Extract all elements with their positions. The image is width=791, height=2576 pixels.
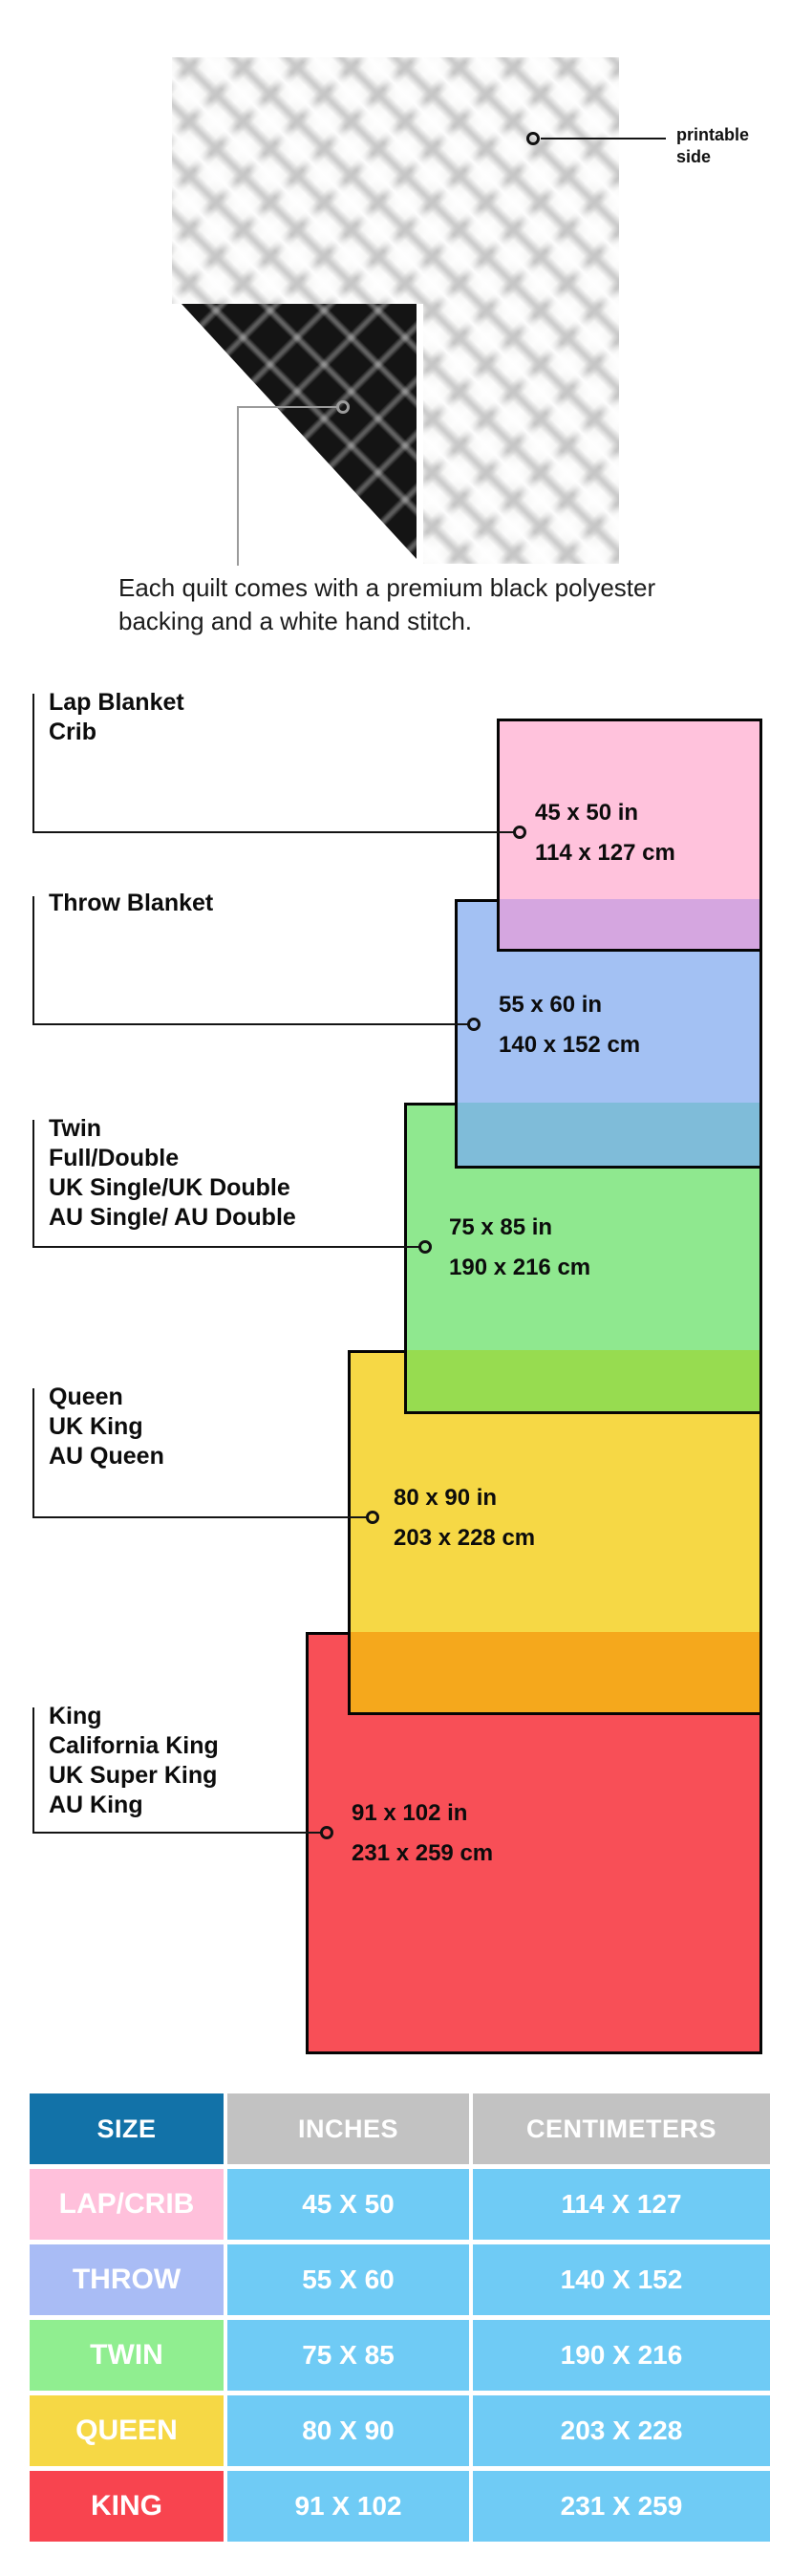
lap-marker-icon bbox=[513, 826, 526, 839]
leader-lap-h bbox=[32, 831, 514, 833]
throw-cm: 140 x 152 cm bbox=[499, 1025, 640, 1065]
table-row-king-size: KING bbox=[30, 2471, 224, 2542]
quilt-photo bbox=[172, 57, 619, 564]
size-annotation-lap: 45 x 50 in 114 x 127 cm bbox=[535, 793, 675, 873]
label-throw: Throw Blanket bbox=[49, 889, 213, 918]
lap-cm: 114 x 127 cm bbox=[535, 833, 675, 873]
throw-inches: 55 x 60 in bbox=[499, 985, 640, 1025]
printable-side-label-line1: printable bbox=[676, 124, 749, 146]
table-row-queen-size: QUEEN bbox=[30, 2395, 224, 2466]
table-row-lap-crib-cm: 114 X 127 bbox=[473, 2169, 770, 2240]
label-twin-line4: AU Single/ AU Double bbox=[49, 1203, 296, 1233]
lap-inches: 45 x 50 in bbox=[535, 793, 675, 833]
twin-cm: 190 x 216 cm bbox=[449, 1248, 590, 1288]
table-row-twin-cm: 190 X 216 bbox=[473, 2320, 770, 2391]
label-queen-line2: UK King bbox=[49, 1412, 164, 1442]
label-queen-line1: Queen bbox=[49, 1383, 164, 1412]
table-row-king-cm: 231 X 259 bbox=[473, 2471, 770, 2542]
table-row-throw-inches: 55 X 60 bbox=[227, 2244, 469, 2315]
king-marker-icon bbox=[320, 1826, 333, 1839]
table-row-twin-inches: 75 X 85 bbox=[227, 2320, 469, 2391]
label-lap-crib: Lap Blanket Crib bbox=[49, 688, 184, 747]
king-cm: 231 x 259 cm bbox=[352, 1834, 493, 1874]
leader-king-v bbox=[32, 1707, 34, 1833]
throw-marker-icon bbox=[467, 1018, 481, 1031]
label-lap-line1: Lap Blanket bbox=[49, 688, 184, 718]
leader-king-h bbox=[32, 1832, 321, 1834]
twin-inches: 75 x 85 in bbox=[449, 1208, 590, 1248]
label-king: King California King UK Super King AU Ki… bbox=[49, 1702, 219, 1820]
label-king-line1: King bbox=[49, 1702, 219, 1731]
leader-lap-v bbox=[32, 694, 34, 832]
quilt-caption-line1: Each quilt comes with a premium black po… bbox=[118, 571, 711, 605]
label-twin-line3: UK Single/UK Double bbox=[49, 1173, 296, 1203]
table-row-throw-size: THROW bbox=[30, 2244, 224, 2315]
black-backing-leader-line-h bbox=[238, 406, 337, 408]
printable-side-marker-icon bbox=[526, 132, 540, 145]
table-header-size: SIZE bbox=[30, 2093, 224, 2164]
black-backing-leader-line-v bbox=[237, 406, 239, 566]
table-row-queen-cm: 203 X 228 bbox=[473, 2395, 770, 2466]
table-row-lap-crib-size: LAP/CRIB bbox=[30, 2169, 224, 2240]
table-row-queen-inches: 80 X 90 bbox=[227, 2395, 469, 2466]
printable-side-label: printable side bbox=[676, 124, 749, 168]
size-annotation-king: 91 x 102 in 231 x 259 cm bbox=[352, 1793, 493, 1874]
table-row-twin-size: TWIN bbox=[30, 2320, 224, 2391]
size-annotation-throw: 55 x 60 in 140 x 152 cm bbox=[499, 985, 640, 1065]
black-backing-marker-icon bbox=[336, 400, 350, 414]
label-king-line4: AU King bbox=[49, 1791, 219, 1820]
label-lap-line2: Crib bbox=[49, 718, 184, 747]
queen-cm: 203 x 228 cm bbox=[394, 1518, 535, 1558]
queen-inches: 80 x 90 in bbox=[394, 1478, 535, 1518]
label-queen: Queen UK King AU Queen bbox=[49, 1383, 164, 1471]
printable-side-label-line2: side bbox=[676, 146, 749, 168]
leader-twin-v bbox=[32, 1120, 34, 1247]
quilt-size-chart-infographic: printable side Each quilt comes with a p… bbox=[0, 0, 791, 2576]
quilt-caption-line2: backing and a white hand stitch. bbox=[118, 605, 711, 638]
label-king-line2: California King bbox=[49, 1731, 219, 1761]
size-annotation-queen: 80 x 90 in 203 x 228 cm bbox=[394, 1478, 535, 1558]
twin-marker-icon bbox=[418, 1240, 432, 1254]
label-twin-line2: Full/Double bbox=[49, 1144, 296, 1173]
label-throw-line1: Throw Blanket bbox=[49, 889, 213, 918]
leader-twin-h bbox=[32, 1246, 419, 1248]
leader-queen-h bbox=[32, 1516, 367, 1518]
queen-marker-icon bbox=[366, 1511, 379, 1524]
label-king-line3: UK Super King bbox=[49, 1761, 219, 1791]
size-table: SIZE INCHES CENTIMETERS LAP/CRIB 45 X 50… bbox=[30, 2093, 770, 2542]
label-twin: Twin Full/Double UK Single/UK Double AU … bbox=[49, 1114, 296, 1233]
label-twin-line1: Twin bbox=[49, 1114, 296, 1144]
table-header-centimeters: CENTIMETERS bbox=[473, 2093, 770, 2164]
label-queen-line3: AU Queen bbox=[49, 1442, 164, 1471]
quilt-caption: Each quilt comes with a premium black po… bbox=[118, 571, 711, 638]
king-inches: 91 x 102 in bbox=[352, 1793, 493, 1834]
table-header-inches: INCHES bbox=[227, 2093, 469, 2164]
leader-queen-v bbox=[32, 1388, 34, 1517]
table-row-throw-cm: 140 X 152 bbox=[473, 2244, 770, 2315]
leader-throw-v bbox=[32, 896, 34, 1024]
printable-side-leader-line bbox=[541, 138, 666, 140]
table-row-king-inches: 91 X 102 bbox=[227, 2471, 469, 2542]
table-row-lap-crib-inches: 45 X 50 bbox=[227, 2169, 469, 2240]
size-annotation-twin: 75 x 85 in 190 x 216 cm bbox=[449, 1208, 590, 1288]
leader-throw-h bbox=[32, 1023, 468, 1025]
